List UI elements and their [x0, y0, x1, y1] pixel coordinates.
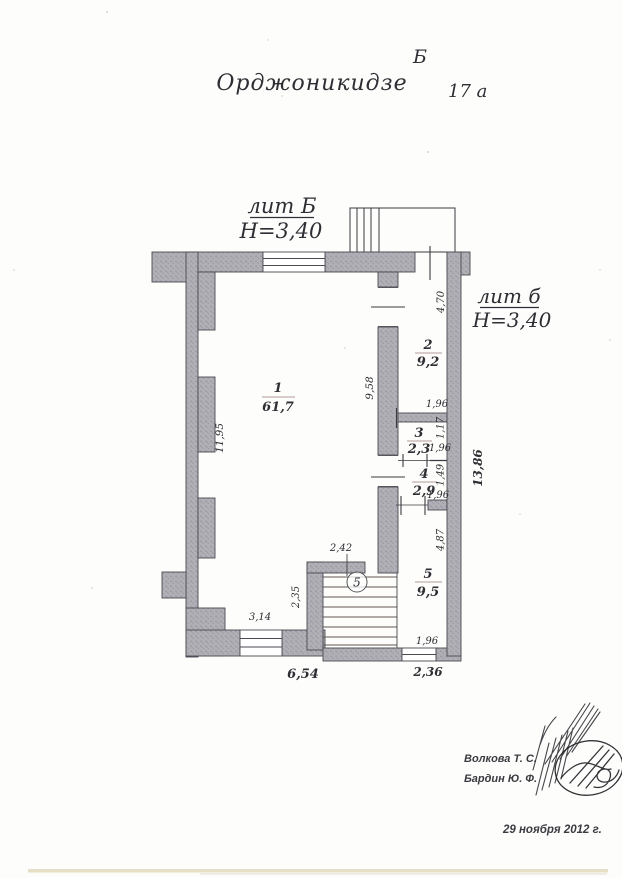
house-number-label: 17 а — [448, 81, 487, 102]
dim-room5-width: 1,96 — [416, 636, 439, 647]
room-area: 9,2 — [417, 355, 440, 370]
dim-room5-height: 4,87 — [436, 528, 447, 552]
wall-segment — [378, 272, 398, 287]
room-area: 9,5 — [417, 585, 440, 600]
dim-stair-width: 2,42 — [329, 543, 352, 554]
room-area: 2,3 — [407, 442, 431, 457]
document-date: 29 ноября 2012 г. — [502, 824, 602, 836]
liter-annex-annotation: лит б Н=3,40 — [472, 284, 552, 332]
liter-annex-label: лит б — [477, 284, 541, 308]
room-2-label: 2 9,2 — [415, 338, 442, 370]
footer-block: Волкова Т. С. Бардин Ю. Ф. 29 ноября 201… — [464, 703, 622, 836]
scanned-floorplan-page: Б Орджоникидзе 17 а лит Б Н=3,40 лит б Н… — [0, 0, 622, 878]
room-area: 61,7 — [262, 400, 294, 415]
page-edge-band — [28, 869, 608, 873]
porch-outline — [350, 208, 455, 252]
street-name-label: Орджоникидзе — [216, 71, 407, 96]
room-number: 3 — [414, 426, 423, 441]
wall-segment — [447, 252, 461, 656]
wall-segment — [378, 327, 398, 455]
dim-annex-bottom: 2,36 — [412, 665, 443, 679]
dim-room4-height: 1,49 — [436, 463, 447, 486]
room-number: 5 — [423, 567, 432, 582]
wall-pilaster — [162, 572, 186, 598]
dim-bottom-window: 3,14 — [249, 612, 271, 623]
wall-pilaster — [198, 498, 215, 558]
dim-room3-width: 1,96 — [429, 443, 452, 454]
wall-pilaster — [198, 272, 215, 330]
building-letter-label: Б — [412, 46, 427, 68]
dim-room3-height: 1,17 — [436, 416, 447, 439]
window-annex-bottom — [402, 648, 436, 661]
floorplan-drawing: Б Орджоникидзе 17 а лит Б Н=3,40 лит б Н… — [0, 0, 622, 878]
window-top — [263, 252, 325, 272]
dim-right-total: 13,86 — [471, 449, 485, 487]
liter-main-label: лит Б — [248, 194, 317, 218]
window-bottom-left — [240, 630, 282, 656]
wall-segment — [152, 252, 188, 282]
room-labels: 1 61,7 2 9,2 3 2,3 4 2,9 5 9,5 — [262, 338, 442, 600]
dim-bottom-total: 6,54 — [287, 667, 319, 682]
dimension-labels: 11,95 9,58 4,70 1,96 1,17 1,96 1,49 1,96… — [214, 290, 485, 682]
wall-segment — [323, 648, 402, 661]
wall-segment — [307, 562, 365, 573]
room-5-label: 5 9,5 — [415, 567, 442, 600]
liter-annex-height: Н=3,40 — [472, 308, 552, 332]
wall-segment — [307, 562, 323, 650]
dim-room2-width: 1,96 — [426, 399, 449, 410]
room-number: 1 — [273, 381, 282, 396]
wall-partition — [428, 500, 447, 510]
dim-stair-depth: 2,35 — [291, 586, 302, 609]
wall-segment — [378, 487, 398, 573]
wall-segment — [186, 630, 240, 656]
technician-name: Волкова Т. С. — [464, 753, 537, 765]
liter-main-annotation: лит Б Н=3,40 — [239, 194, 323, 243]
wall-pilaster — [198, 377, 215, 452]
stair-marker-number: 5 — [353, 576, 361, 590]
room-number: 4 — [419, 467, 428, 482]
dim-room4-width: 1,96 — [427, 490, 450, 501]
dim-room1-height: 11,95 — [214, 423, 226, 453]
dim-mid-wall: 9,58 — [364, 376, 376, 400]
engineer-name: Бардин Ю. Ф. — [464, 773, 537, 785]
room-1-label: 1 61,7 — [262, 381, 295, 415]
room-number: 2 — [422, 338, 432, 353]
liter-main-height: Н=3,40 — [239, 219, 323, 243]
signature-scribble-right — [551, 736, 622, 801]
entrance-porch — [350, 208, 455, 252]
page-edge — [28, 869, 608, 874]
windows — [240, 252, 436, 661]
wall-segment — [186, 252, 198, 657]
wall-segment — [325, 252, 415, 272]
dim-room2-height: 4,70 — [436, 290, 447, 314]
